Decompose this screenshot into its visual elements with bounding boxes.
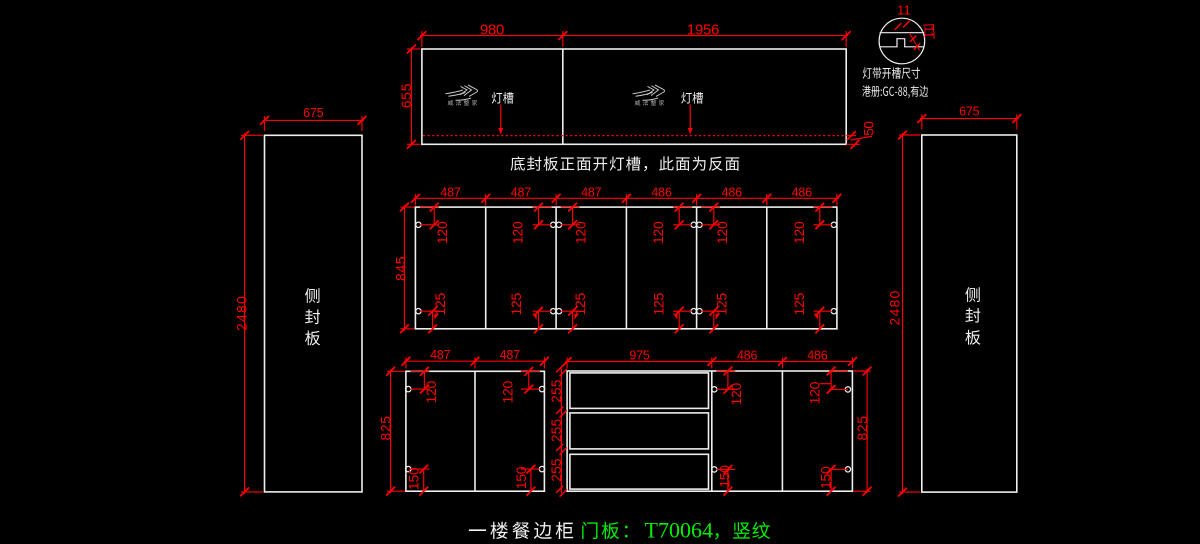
svg-text:486: 486 [792,185,813,199]
svg-text:120: 120 [807,381,823,404]
svg-text:120: 120 [714,221,730,244]
svg-text:120: 120 [434,221,450,244]
svg-text:2480: 2480 [886,290,902,326]
svg-text:T70064: T70064 [645,518,713,543]
svg-text:1956: 1956 [687,21,719,38]
svg-text:486: 486 [737,348,758,362]
svg-text:11: 11 [921,26,935,39]
svg-text:255: 255 [549,419,564,442]
svg-text:980: 980 [480,21,504,38]
svg-text:120: 120 [509,221,525,244]
svg-text:150: 150 [406,467,422,490]
svg-text:655: 655 [398,83,414,108]
svg-text:125: 125 [714,293,730,316]
svg-text:487: 487 [500,348,521,362]
svg-text:125: 125 [508,293,524,316]
svg-text:487: 487 [430,348,451,362]
svg-text:975: 975 [629,348,650,362]
svg-text:486: 486 [807,348,828,362]
svg-text:120: 120 [423,381,439,404]
svg-text:120: 120 [650,221,666,244]
svg-text:675: 675 [959,104,980,118]
svg-text:120: 120 [791,221,807,244]
svg-text:120: 120 [573,221,589,244]
svg-text:125: 125 [572,293,588,316]
svg-text:486: 486 [651,185,672,199]
svg-text:486: 486 [722,185,743,199]
svg-text:150: 150 [817,466,833,489]
svg-text:120: 120 [728,383,744,406]
svg-text:825: 825 [854,415,870,440]
svg-text:150: 150 [716,465,732,488]
svg-text:487: 487 [440,185,461,199]
svg-text:255: 255 [549,458,564,481]
svg-text:675: 675 [303,106,324,120]
svg-text:487: 487 [581,185,602,199]
svg-text:125: 125 [432,293,448,316]
svg-text:845: 845 [393,256,409,281]
svg-text:125: 125 [651,293,667,316]
svg-text:11: 11 [897,3,911,18]
svg-text:255: 255 [549,379,564,402]
svg-text:2480: 2480 [234,295,250,331]
svg-text:120: 120 [500,381,516,404]
svg-text:150: 150 [513,466,529,489]
svg-text:50: 50 [861,121,876,135]
svg-text:125: 125 [791,293,807,316]
svg-text:825: 825 [377,415,393,440]
svg-text:487: 487 [511,185,532,199]
